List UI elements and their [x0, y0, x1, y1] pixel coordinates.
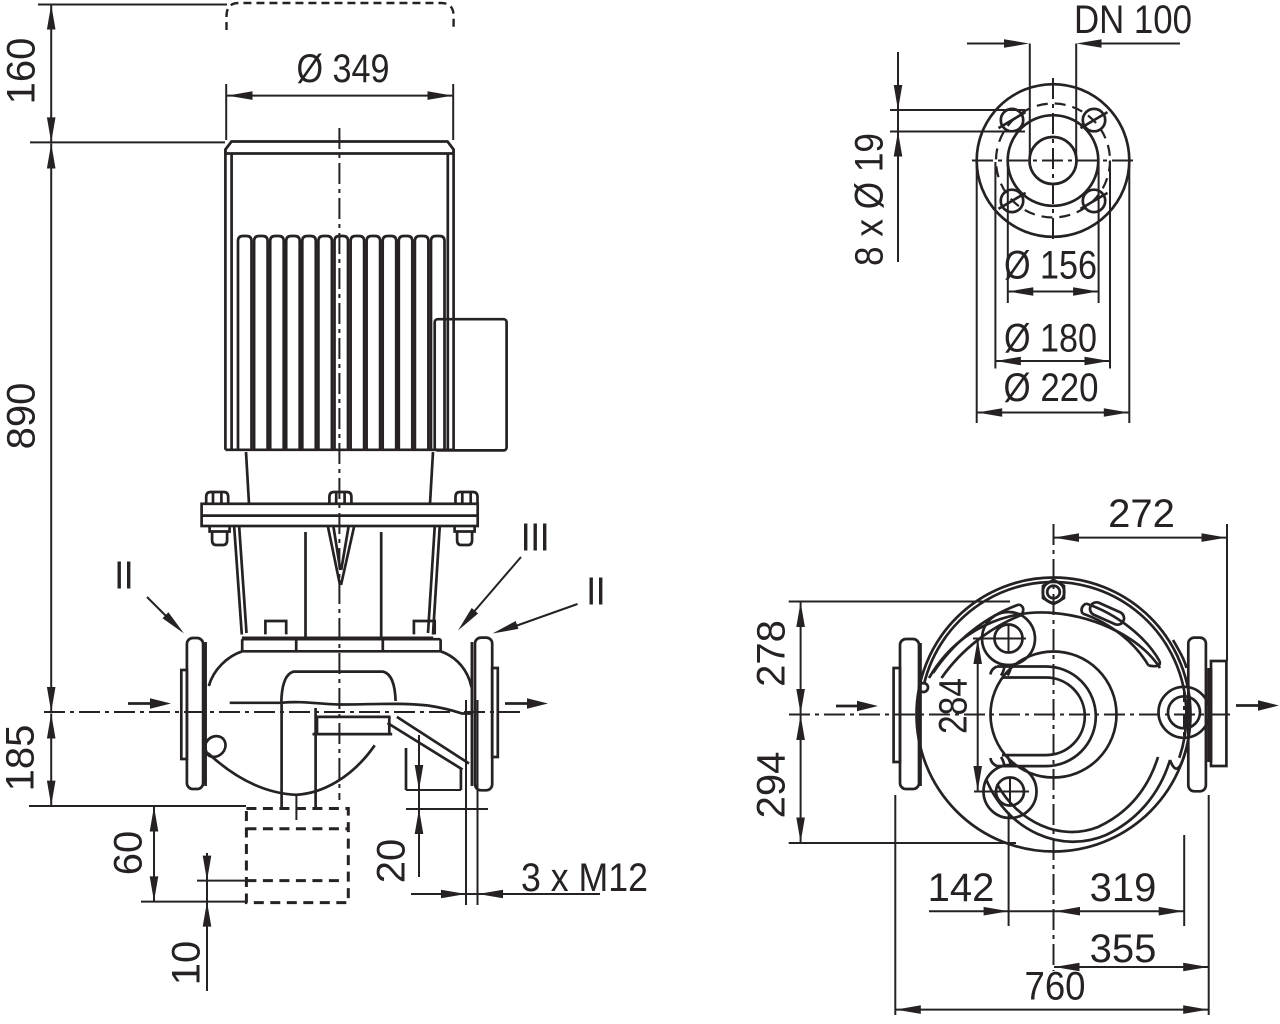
svg-text:319: 319: [1090, 866, 1157, 910]
svg-text:Ø 180: Ø 180: [1004, 317, 1097, 361]
svg-text:278: 278: [750, 620, 794, 687]
svg-text:294: 294: [750, 752, 794, 819]
svg-text:Ø 156: Ø 156: [1004, 244, 1097, 288]
svg-text:DN 100: DN 100: [1074, 0, 1192, 42]
svg-text:160: 160: [0, 38, 44, 105]
svg-text:272: 272: [1108, 492, 1175, 536]
svg-text:10: 10: [165, 941, 209, 986]
svg-text:3 x M12: 3 x M12: [521, 856, 648, 900]
svg-text:284: 284: [932, 678, 976, 734]
svg-text:Ø 220: Ø 220: [1004, 366, 1099, 410]
svg-text:8 x Ø 19: 8 x Ø 19: [848, 133, 892, 266]
svg-text:142: 142: [928, 866, 995, 910]
svg-text:185: 185: [0, 725, 43, 792]
svg-text:20: 20: [370, 839, 414, 884]
svg-text:Ø 349: Ø 349: [297, 47, 390, 91]
svg-text:760: 760: [1025, 965, 1086, 1009]
svg-text:890: 890: [0, 383, 44, 450]
svg-text:60: 60: [107, 831, 151, 876]
svg-text:355: 355: [1090, 927, 1157, 971]
